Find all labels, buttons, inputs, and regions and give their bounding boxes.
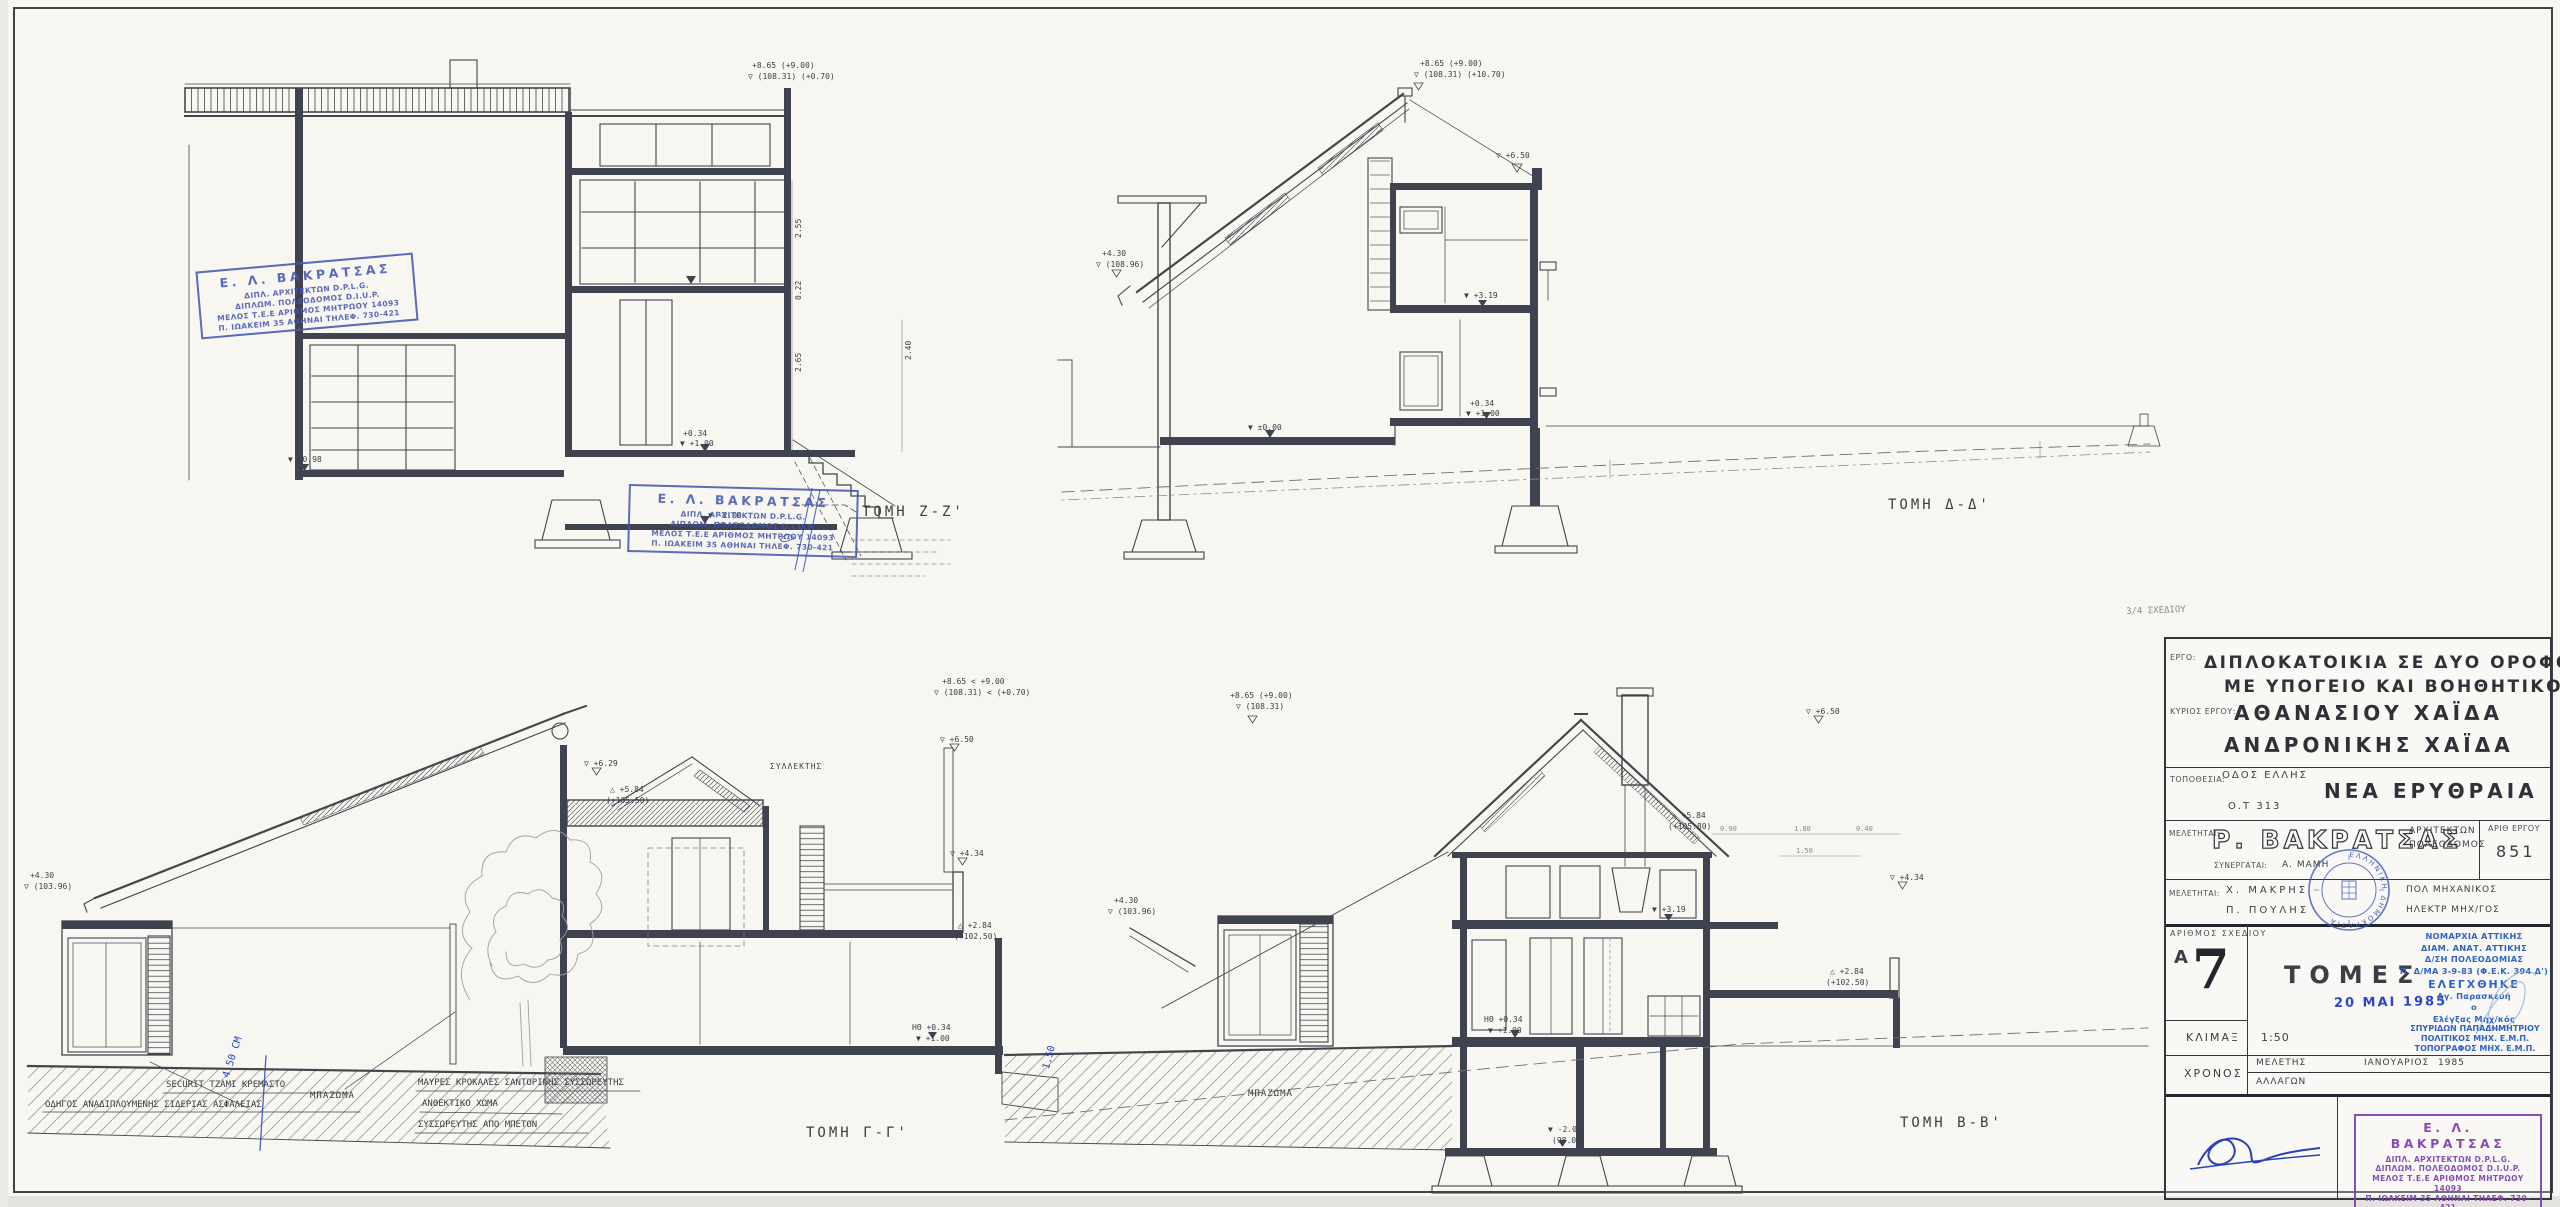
label-allagon: ΑΛΛΑΓΩΝ [2256, 1077, 2306, 1087]
stamp-line: Ε. Λ. ΒΑΚΡΑΤΣΑΣ [2363, 1120, 2533, 1153]
pencil-note: 3/4 ΣΧΕΔΙΟΥ [2126, 606, 2186, 617]
architect-stamp-purple: Ε. Λ. ΒΑΚΡΑΤΣΑΣΔΙΠΛ. ΑΡΧΙΤΕΚΤΩΝ D.P.L.G.… [2354, 1114, 2542, 1207]
city-block: Ο.Τ 313 [2228, 801, 2281, 812]
architect-role2: ΠΟΛΕΟΔΟΜΟΣ [2409, 840, 2486, 850]
annotation-text: △ +2.84 [1830, 968, 1864, 976]
annotation-text: ▽ (108.31) < (+0.70) [934, 689, 1030, 697]
scale-value: 1:50 [2261, 1031, 2290, 1044]
annotation-text: ▽ (103.96) [1108, 908, 1156, 916]
annotation-text: 2.65 [795, 353, 803, 372]
annotation-text: ΗΘ +0.34 [912, 1024, 951, 1032]
annotation-text: +8.65 (+9.00) [752, 62, 815, 70]
engineer-1: Χ. ΜΑΚΡΗΣ [2226, 885, 2308, 896]
annotation-text: ▽ +6.50 [940, 736, 974, 744]
stamp-line: Π. ΙΩΑΚΕΙΜ 35 ΑΘΗΝΑΙ ΤΗΛΕΦ. 730-421 [2363, 1194, 2533, 1207]
stamp-line: ΔΙΠΛΩΜ. ΠΟΛΕΟΔΟΜΟΣ D.I.U.P. [2363, 1164, 2533, 1174]
annotation-text: 1.50 [1796, 848, 1813, 855]
architect-signature [2180, 1117, 2330, 1187]
annotation-text: ΣΥΣΣΩΡΕΥΤΗΣ ΑΠΟ ΜΠΕΤΟΝ [418, 1121, 537, 1130]
stamp-line: ΜΕΛΟΣ Τ.Ε.Ε ΑΡΙΘΜΟΣ ΜΗΤΡΩΟΥ 14093 [2363, 1174, 2533, 1194]
annotation-text: ▼ +1.00 [916, 1035, 950, 1043]
annotation-text: ▼ +1.00 [1466, 410, 1500, 418]
annotation-text: (+102.50) [1826, 979, 1869, 987]
annotation-text: ▽ (108.31) [1236, 703, 1284, 711]
annotation-text: ▽ +6.29 [584, 760, 618, 768]
annotation-text: 1.80 [1794, 826, 1811, 833]
annotation-text: ▽ (108.96) [1096, 261, 1144, 269]
annotation-text: 2.40 [905, 341, 913, 360]
label-ergo: ΕΡΓΟ: [2170, 653, 2196, 662]
study-month: ΙΑΝΟΥΑΡΙΟΣ [2364, 1058, 2429, 1068]
street: ΟΔΟΣ ΕΛΛΗΣ [2222, 770, 2308, 781]
annotation-text: (+105.50) [606, 797, 649, 805]
label-xronos: ΧΡΟΝΟΣ [2184, 1067, 2243, 1080]
annotation-text: (98.00) [1552, 1137, 1586, 1145]
annotation-text: ΑΝΘΕΚΤΙΚΟ ΧΩΜΑ [422, 1100, 498, 1109]
annotation-text: ΜΠΑΖΩΜΑ [1248, 1090, 1293, 1099]
annotation-text: +0.34 [683, 430, 707, 438]
label-kyrios: ΚΥΡΙΟΣ ΕΡΓΟΥ: [2170, 707, 2236, 716]
annotation-text: ▽ +4.34 [1890, 874, 1924, 882]
annotation-text: ▽ (108.31) (+0.70) [748, 73, 835, 81]
annotation-text: ▼ -2.00 [1548, 1126, 1582, 1134]
project-title-line1: ΔΙΠΛΟΚΑΤΟΙΚΙΑ ΣΕ ΔΥΟ ΟΡΟΦΟΥΣ [2204, 653, 2560, 673]
area: ΝΕΑ ΕΡΥΘΡΑΙΑ [2324, 779, 2538, 803]
sheet-number: 7 [2192, 937, 2230, 1001]
annotation-text: 2.55 [795, 219, 803, 238]
annotation-text: +4.30 [1114, 897, 1138, 905]
annotation-text: ΗΘ +0.34 [1484, 1016, 1523, 1024]
annotation-text: +8.65 (+9.00) [1420, 60, 1483, 68]
stamp-line: ΣΠΥΡΙΔΩΝ ΠΑΠΑΔΗΜΗΤΡΙΟΥ [2400, 1024, 2550, 1034]
section-label-bb: ΤΟΜΗ Β-Β' [1900, 1116, 2003, 1130]
blueprint-sheet: +8.65 (+9.00)▽ (108.31) (+0.70)+0.34▼ +1… [0, 0, 2560, 1207]
owner-line1: ΑΘΑΝΑΣΙΟΥ ΧΑΪΔΑ [2234, 701, 2503, 725]
annotation-text: +8.65 < +9.00 [942, 678, 1005, 686]
annotation-text: ▼ +1.00 [680, 440, 714, 448]
annotation-text: 0.90 [1720, 826, 1737, 833]
project-number: 851 [2496, 842, 2536, 861]
pen-note: 1.50 [1042, 1045, 1058, 1071]
annotation-text: △ +2.84 [958, 922, 992, 930]
label-meletitai-2: ΜΕΛΕΤΗΤΑΙ: [2169, 889, 2220, 898]
annotation-text: ▽ (108.31) (+10.70) [1414, 71, 1506, 79]
label-arith-ergou: ΑΡΙΘ ΕΡΓΟΥ [2488, 824, 2540, 833]
note-securit: SECURIT ΤΖΑΜΙ ΚΡΕΜΑΣΤΟ [166, 1081, 285, 1090]
round-seal: ΕΛΛΗΝΙΚΗ ΔΗΜΟΚΡΑΤΙΑ [2306, 847, 2392, 933]
engineer-2-role: ΗΛΕΚΤΡ ΜΗΧ/ΓΟΣ [2406, 905, 2500, 915]
annotation-text: (+105.80) [1668, 823, 1711, 831]
section-label-zz: ΤΟΜΗ Ζ-Ζ' [862, 505, 965, 519]
note-odigos: ΟΔΗΓΟΣ ΑΝΑΔΙΠΛΟΥΜΕΝΗΣ ΣΙΔΕΡΙΑΣ ΑΣΦΑΛΕΙΑΣ [45, 1101, 262, 1110]
architect-role1: ΑΡΧΙΤΕΚΤΩΝ [2409, 826, 2476, 836]
annotation-text: ΣΥΛΛΕΚΤΗΣ [770, 763, 822, 771]
title-block: ΕΡΓΟ: ΔΙΠΛΟΚΑΤΟΙΚΙΑ ΣΕ ΔΥΟ ΟΡΟΦΟΥΣ ΜΕ ΥΠ… [2164, 637, 2552, 1200]
stamp-line: ΔΙΠΛ. ΑΡΧΙΤΕΚΤΩΝ D.P.L.G. [2363, 1155, 2533, 1165]
project-title-line2: ΜΕ ΥΠΟΓΕΙΟ ΚΑΙ ΒΟΗΘΗΤΙΚΟ [2224, 677, 2560, 697]
section-label-gg: ΤΟΜΗ Γ-Γ' [806, 1126, 909, 1140]
annotation-text: ▼ ±0.00 [1248, 424, 1282, 432]
annotation-text: ▼ +3.19 [1652, 906, 1686, 914]
annotation-text: ▼ +1.00 [1488, 1027, 1522, 1035]
label-meletis: ΜΕΛΕΤΗΣ [2256, 1058, 2306, 1068]
annotation-text: ▽ +6.50 [1806, 708, 1840, 716]
annotation-text: ΜΑΥΡΕΣ ΚΡΟΚΑΛΕΣ ΣΑΝΤΟΡΙΝΗΣ ΣΥΣΣΩΡΕΥΤΗΣ [418, 1079, 624, 1088]
annotation-text: +4.30 [1102, 250, 1126, 258]
sheet-series: Α [2174, 947, 2188, 968]
stamp-line: ΠΟΛΙΤΙΚΟΣ ΜΗΧ. Ε.Μ.Π. [2400, 1034, 2550, 1044]
annotation-text: ▽ (103.96) [24, 883, 72, 891]
annotation-text: (+102.50) [954, 933, 997, 941]
annotation-text: △ +5.84 [1672, 812, 1706, 820]
study-year: 1985 [2438, 1058, 2465, 1068]
annotation-text: +8.65 (+9.00) [1230, 692, 1293, 700]
owner-line2: ΑΝΔΡΟΝΙΚΗΣ ΧΑΪΔΑ [2224, 733, 2514, 757]
annotation-text: 0.40 [1856, 826, 1873, 833]
section-label-dd: ΤΟΜΗ Δ-Δ' [1888, 498, 1991, 512]
annotation-text: ▽ +4.34 [950, 850, 984, 858]
annotation-text: ▼ +3.19 [1464, 292, 1498, 300]
stamp-line: ΤΟΠΟΓΡΑΦΟΣ ΜΗΧ. Ε.Μ.Π. [2400, 1044, 2550, 1054]
architect-stamp-blue-2: Ε. Λ. ΒΑΚΡΑΤΣΑΣΔΙΠΛ. ΑΡΧΙΤΕΚΤΩΝ D.P.L.G.… [627, 484, 859, 558]
annotation-text: 0.22 [795, 281, 803, 300]
checking-engineer-stamp: ΣΠΥΡΙΔΩΝ ΠΑΠΑΔΗΜΗΤΡΙΟΥΠΟΛΙΤΙΚΟΣ ΜΗΧ. Ε.Μ… [2400, 1024, 2550, 1054]
pen-note: 4.50 CM [222, 1036, 245, 1079]
engineer-2: Π. ΠΟΥΛΗΣ [2226, 905, 2309, 916]
annotation-text: ΜΠΑΖΩΜΑ [310, 1092, 355, 1101]
annotation-text: ▽ +6.50 [1496, 152, 1530, 160]
annotation-text: △ +5.84 [610, 786, 644, 794]
annotation-text: ▼ -0.98 [288, 456, 322, 464]
annotation-text: +4.30 [30, 872, 54, 880]
engineer-1-role: ΠΟΛ ΜΗΧΑΝΙΚΟΣ [2406, 885, 2497, 895]
label-klimax: ΚΛΙΜΑΞ [2186, 1031, 2240, 1044]
label-topothesia: ΤΟΠΟΘΕΣΙΑ: [2170, 775, 2225, 784]
annotation-text: +0.34 [1470, 400, 1494, 408]
label-synergatai: ΣΥΝΕΡΓΑΤΑΙ: [2214, 861, 2267, 870]
